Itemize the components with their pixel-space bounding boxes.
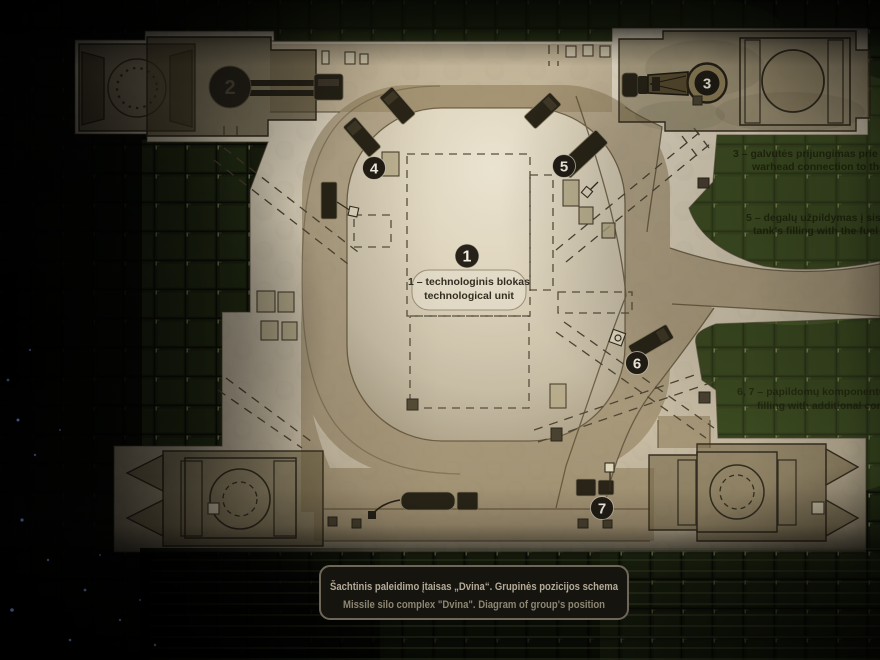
svg-text:Missile silo complex "Dvina".: Missile silo complex "Dvina". Diagram of… bbox=[343, 599, 605, 611]
svg-text:Šachtinis paleidimo įtaisas „D: Šachtinis paleidimo įtaisas „Dvina“. Gru… bbox=[330, 580, 619, 593]
